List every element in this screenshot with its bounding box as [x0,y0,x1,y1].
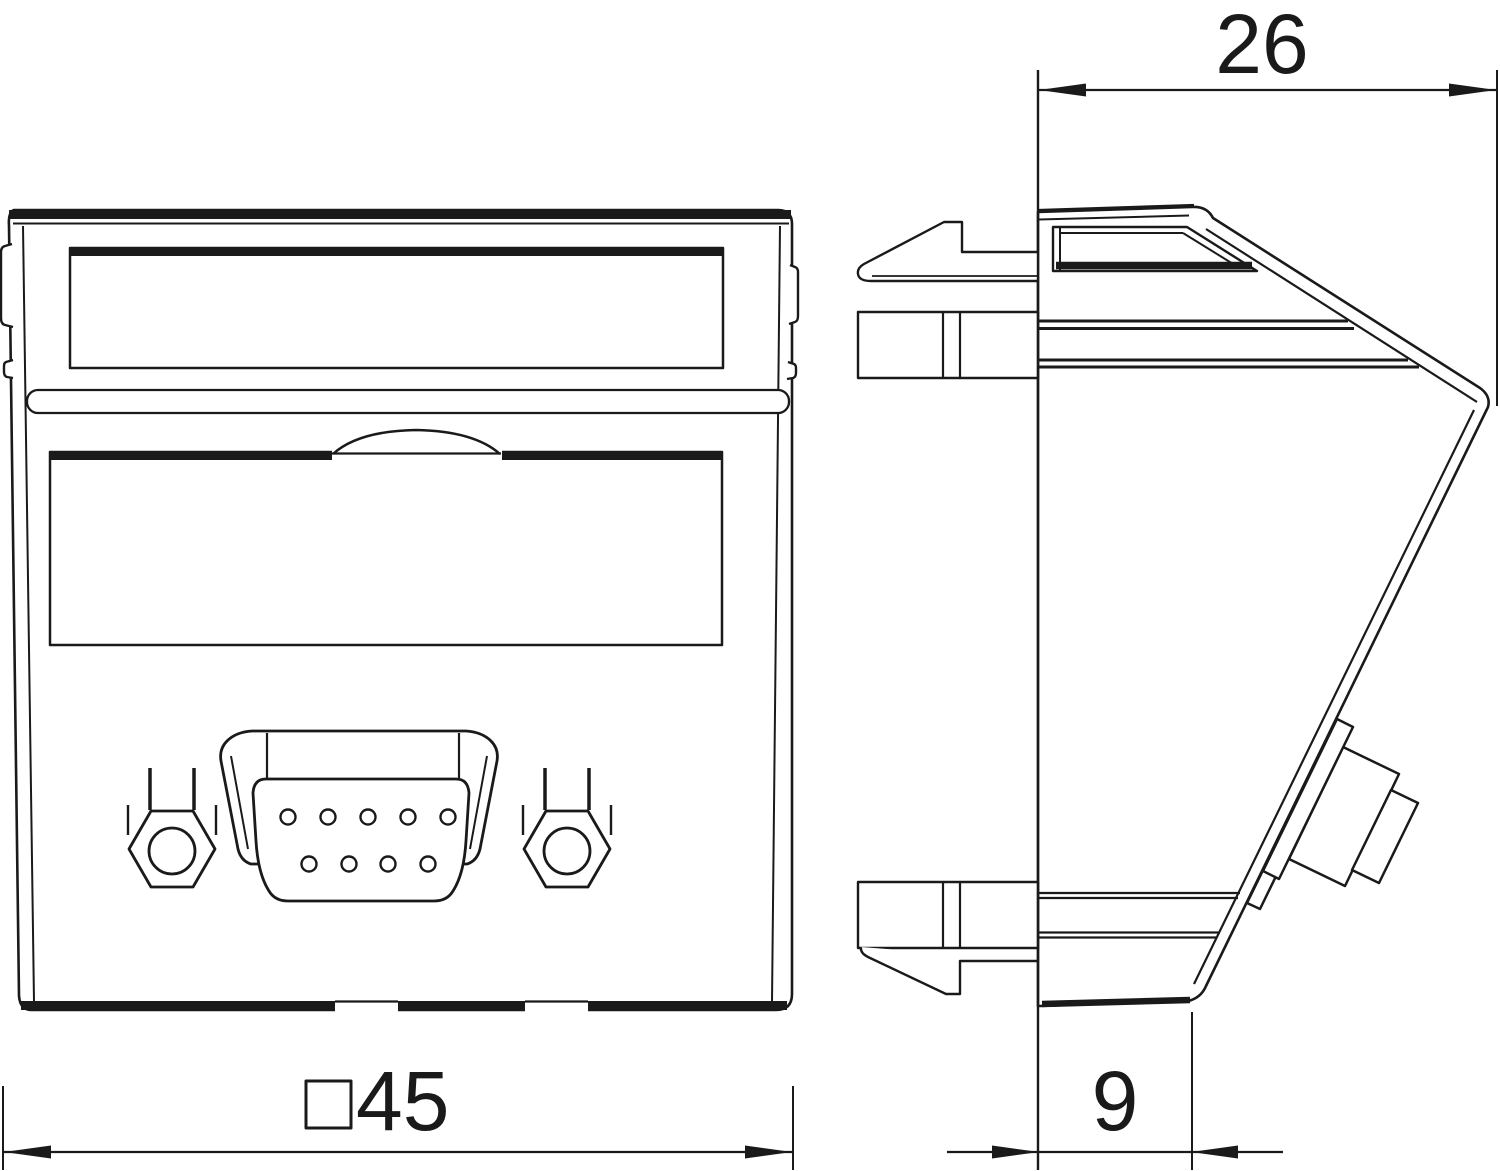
arrowhead-left-icon [1039,84,1086,97]
label-window [70,248,723,368]
top-mounting-block [858,312,1038,378]
side-bottom-edge-thick [1042,1000,1190,1004]
left-tab-lower [4,360,13,378]
dimension-depth-label: 9 [1092,1054,1139,1148]
left-tab-upper [1,244,13,327]
square-symbol-icon [306,1081,351,1128]
arrowhead-right-icon [745,1146,792,1159]
right-tab-lower [787,362,796,379]
arrowhead-inward-right-icon [992,1146,1039,1159]
divider-band [27,390,789,413]
arrowhead-right-icon [1449,84,1496,97]
front-view [1,210,798,1012]
dsub-module-drawing: 26 45 9 [0,0,1500,1171]
right-tab-upper [789,265,798,324]
dimension-front-size: 45 [3,1054,793,1170]
cover-window [50,430,722,645]
arrowhead-inward-left-icon [1191,1146,1238,1159]
top-latch [858,222,1037,281]
bottom-mounting-block [858,882,1038,948]
dimension-front-label: 45 [356,1054,449,1148]
dimension-depth: 9 [947,1012,1283,1170]
side-view [858,70,1489,1170]
technical-drawing-page: 26 45 9 [0,0,1500,1171]
dsub-mating-face [253,779,469,901]
bottom-latch [861,947,1037,994]
dsub9-connector [221,731,498,901]
dimension-top-label: 26 [1215,0,1308,91]
arrowhead-left-icon [4,1146,51,1159]
